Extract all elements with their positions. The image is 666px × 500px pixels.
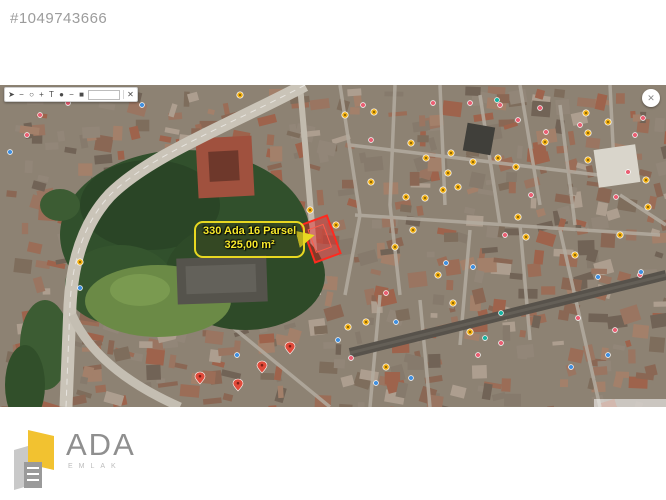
logo-title: ADA bbox=[66, 430, 136, 460]
yellow-marker[interactable] bbox=[572, 252, 578, 258]
yellow-marker[interactable] bbox=[605, 119, 611, 125]
yellow-marker[interactable] bbox=[643, 177, 649, 183]
yellow-marker[interactable] bbox=[645, 204, 651, 210]
yellow-marker[interactable] bbox=[617, 232, 623, 238]
pink-marker[interactable] bbox=[384, 291, 389, 296]
blue-marker[interactable] bbox=[444, 261, 449, 266]
yellow-marker[interactable] bbox=[307, 207, 313, 213]
yellow-marker[interactable] bbox=[448, 150, 454, 156]
line-tool[interactable]: − bbox=[18, 91, 25, 99]
map-canvas bbox=[0, 85, 666, 407]
pink-marker[interactable] bbox=[529, 193, 534, 198]
teal-marker[interactable] bbox=[483, 336, 488, 341]
listing-id: #1049743666 bbox=[10, 10, 107, 27]
pink-marker[interactable] bbox=[369, 138, 374, 143]
blue-marker[interactable] bbox=[606, 353, 611, 358]
blue-marker[interactable] bbox=[639, 270, 644, 275]
plus-tool[interactable]: + bbox=[38, 91, 45, 99]
pink-marker[interactable] bbox=[538, 106, 543, 111]
blue-marker[interactable] bbox=[8, 150, 13, 155]
listing-page: #1049743666 bbox=[0, 0, 666, 500]
yellow-marker[interactable] bbox=[77, 259, 83, 265]
parcel-label: 330 Ada 16 Parsel 325,00 m² bbox=[194, 221, 305, 258]
parcel-label-line2: 325,00 m² bbox=[203, 239, 296, 253]
satellite-map[interactable]: ➤−○+T●−■✕ ✕ 330 Ada 16 Parsel 325,00 m² bbox=[0, 85, 666, 407]
yellow-marker[interactable] bbox=[542, 139, 548, 145]
yellow-marker[interactable] bbox=[435, 272, 441, 278]
yellow-marker[interactable] bbox=[345, 324, 351, 330]
yellow-marker[interactable] bbox=[403, 194, 409, 200]
company-logo: ADA EMLAK bbox=[8, 430, 136, 490]
yellow-marker[interactable] bbox=[467, 329, 473, 335]
yellow-marker[interactable] bbox=[392, 244, 398, 250]
text-tool[interactable]: T bbox=[48, 91, 55, 99]
blue-marker[interactable] bbox=[394, 320, 399, 325]
blue-marker[interactable] bbox=[409, 376, 414, 381]
yellow-marker[interactable] bbox=[440, 187, 446, 193]
separator bbox=[123, 90, 124, 99]
pink-marker[interactable] bbox=[613, 328, 618, 333]
yellow-marker[interactable] bbox=[368, 179, 374, 185]
pink-marker[interactable] bbox=[626, 170, 631, 175]
circle-tool[interactable]: ○ bbox=[28, 91, 35, 99]
pink-marker[interactable] bbox=[38, 113, 43, 118]
blue-marker[interactable] bbox=[140, 103, 145, 108]
pink-marker[interactable] bbox=[633, 133, 638, 138]
pink-marker[interactable] bbox=[503, 233, 508, 238]
close-icon: ✕ bbox=[647, 94, 655, 103]
map-control-button[interactable]: ✕ bbox=[642, 89, 660, 107]
blue-marker[interactable] bbox=[235, 353, 240, 358]
yellow-marker[interactable] bbox=[585, 130, 591, 136]
pink-marker[interactable] bbox=[576, 316, 581, 321]
blue-marker[interactable] bbox=[471, 265, 476, 270]
teal-marker[interactable] bbox=[495, 98, 500, 103]
save-tool[interactable]: ■ bbox=[78, 91, 85, 99]
yellow-marker[interactable] bbox=[423, 155, 429, 161]
yellow-marker[interactable] bbox=[515, 214, 521, 220]
yellow-marker[interactable] bbox=[470, 159, 476, 165]
yellow-marker[interactable] bbox=[408, 140, 414, 146]
yellow-marker[interactable] bbox=[422, 195, 428, 201]
annotation-toolbar: ➤−○+T●−■✕ bbox=[4, 87, 138, 102]
yellow-marker[interactable] bbox=[523, 234, 529, 240]
yellow-marker[interactable] bbox=[585, 157, 591, 163]
yellow-marker[interactable] bbox=[583, 110, 589, 116]
pink-marker[interactable] bbox=[498, 103, 503, 108]
yellow-marker[interactable] bbox=[363, 319, 369, 325]
yellow-marker[interactable] bbox=[445, 170, 451, 176]
minus-tool[interactable]: − bbox=[68, 91, 75, 99]
page-header: #1049743666 bbox=[10, 10, 107, 28]
logo-text: ADA EMLAK bbox=[66, 430, 136, 470]
yellow-marker[interactable] bbox=[342, 112, 348, 118]
teal-marker[interactable] bbox=[499, 311, 504, 316]
parcel-label-line1: 330 Ada 16 Parsel bbox=[203, 225, 296, 239]
blue-marker[interactable] bbox=[374, 381, 379, 386]
pink-marker[interactable] bbox=[468, 101, 473, 106]
yellow-marker[interactable] bbox=[333, 222, 339, 228]
yellow-marker[interactable] bbox=[455, 184, 461, 190]
pink-marker[interactable] bbox=[25, 133, 30, 138]
pink-marker[interactable] bbox=[641, 116, 646, 121]
yellow-marker[interactable] bbox=[371, 109, 377, 115]
map-attribution bbox=[594, 399, 666, 407]
pink-marker[interactable] bbox=[544, 130, 549, 135]
yellow-marker[interactable] bbox=[237, 92, 243, 98]
pink-marker[interactable] bbox=[614, 195, 619, 200]
blue-marker[interactable] bbox=[78, 286, 83, 291]
logo-icon bbox=[8, 430, 58, 490]
close-button[interactable]: ✕ bbox=[127, 91, 134, 99]
yellow-marker[interactable] bbox=[513, 164, 519, 170]
blue-marker[interactable] bbox=[569, 365, 574, 370]
pink-marker[interactable] bbox=[431, 101, 436, 106]
blue-marker[interactable] bbox=[336, 338, 341, 343]
pink-marker[interactable] bbox=[476, 353, 481, 358]
color-dot[interactable]: ● bbox=[58, 91, 65, 99]
size-box bbox=[88, 90, 120, 100]
pink-marker[interactable] bbox=[516, 118, 521, 123]
yellow-marker[interactable] bbox=[410, 227, 416, 233]
logo-subtitle: EMLAK bbox=[66, 463, 136, 470]
yellow-marker[interactable] bbox=[383, 364, 389, 370]
cursor-tool[interactable]: ➤ bbox=[8, 91, 15, 99]
pink-marker[interactable] bbox=[349, 356, 354, 361]
yellow-marker[interactable] bbox=[450, 300, 456, 306]
blue-marker[interactable] bbox=[596, 275, 601, 280]
yellow-marker[interactable] bbox=[495, 155, 501, 161]
pink-marker[interactable] bbox=[499, 341, 504, 346]
pink-marker[interactable] bbox=[578, 123, 583, 128]
pink-marker[interactable] bbox=[361, 103, 366, 108]
